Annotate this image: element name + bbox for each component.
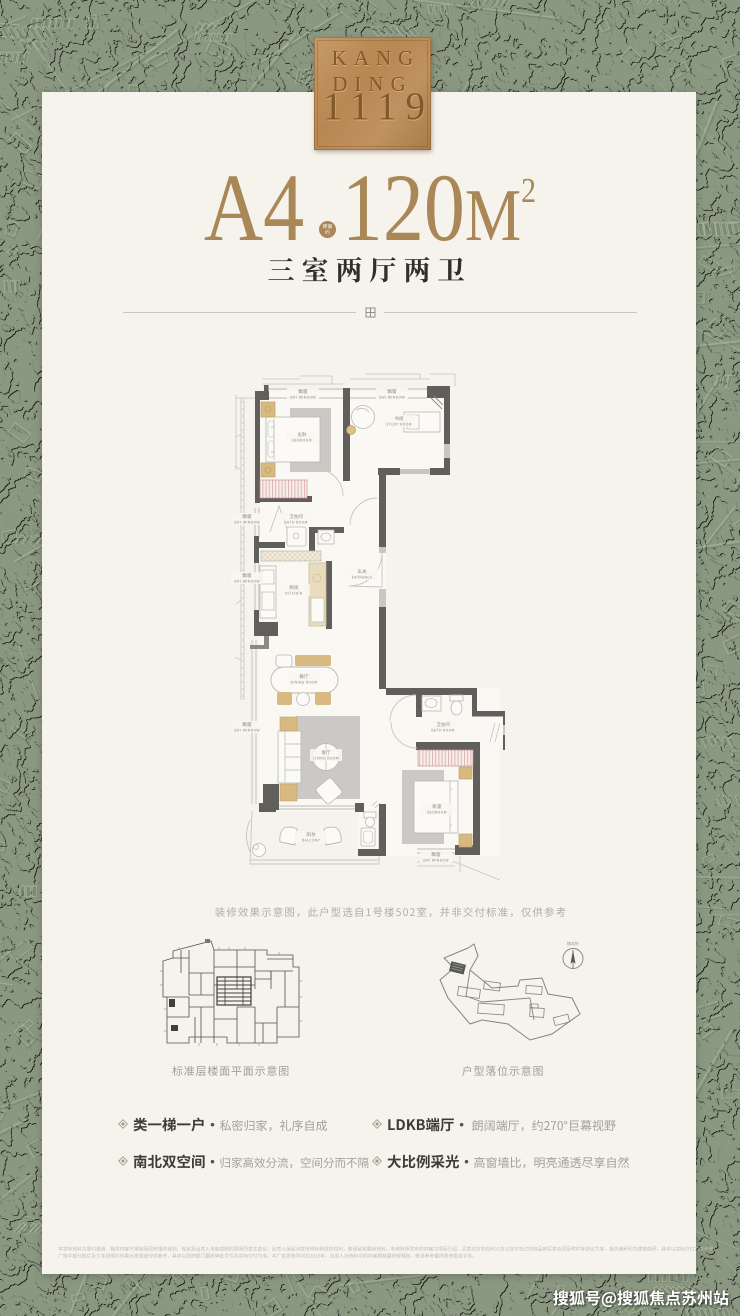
svg-text:BAY WINDOW: BAY WINDOW — [423, 859, 449, 864]
svg-text:BEDROOM: BEDROOM — [427, 811, 447, 816]
svg-text:餐厅: 餐厅 — [299, 674, 309, 680]
svg-text:主卧: 主卧 — [297, 432, 307, 438]
svg-text:LIVING ROOM: LIVING ROOM — [313, 757, 339, 762]
svg-text:STUDY ROOM: STUDY ROOM — [386, 423, 412, 428]
svg-text:BEDROOM: BEDROOM — [292, 439, 312, 444]
svg-text:指北针: 指北针 — [567, 941, 579, 947]
svg-text:BAY WINDOW: BAY WINDOW — [290, 396, 316, 401]
svg-text:飘窗: 飘窗 — [242, 722, 252, 728]
svg-text:卧室: 卧室 — [432, 804, 442, 810]
svg-text:阳台: 阳台 — [306, 832, 316, 838]
svg-text:BAY WINDOW: BAY WINDOW — [234, 580, 260, 585]
svg-text:书房: 书房 — [394, 416, 404, 422]
svg-text:BAY WINDOW: BAY WINDOW — [234, 729, 260, 734]
svg-text:BAY WINDOW: BAY WINDOW — [234, 521, 260, 526]
svg-text:卫生间: 卫生间 — [436, 722, 450, 728]
svg-text:厨房: 厨房 — [289, 585, 299, 591]
svg-text:飘窗: 飘窗 — [242, 573, 252, 579]
svg-text:玄关: 玄关 — [357, 569, 367, 575]
svg-text:飘窗: 飘窗 — [242, 514, 252, 520]
svg-text:DINING ROOM: DINING ROOM — [290, 681, 317, 686]
svg-text:BATH ROOM: BATH ROOM — [431, 729, 455, 734]
svg-text:BAY WINDOW: BAY WINDOW — [379, 396, 405, 401]
svg-text:BATH ROOM: BATH ROOM — [284, 521, 308, 526]
svg-text:飘窗: 飘窗 — [298, 389, 308, 395]
svg-text:客厅: 客厅 — [321, 750, 331, 756]
svg-text:ENTRANCE: ENTRANCE — [352, 576, 373, 581]
svg-text:飘窗: 飘窗 — [431, 852, 441, 858]
svg-text:BALCONY: BALCONY — [302, 839, 320, 844]
svg-text:卫生间: 卫生间 — [289, 514, 303, 520]
svg-text:飘窗: 飘窗 — [387, 389, 397, 395]
svg-text:KITCHEN: KITCHEN — [285, 592, 302, 597]
